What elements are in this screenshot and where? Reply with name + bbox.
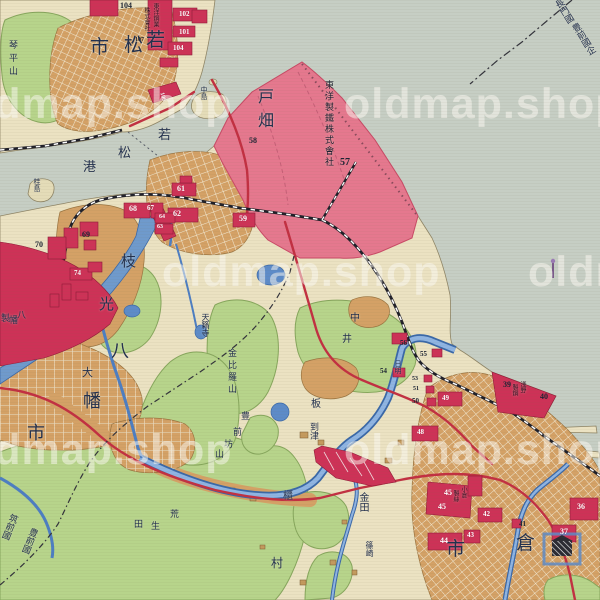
label-tobata: 戸畑 xyxy=(255,88,271,136)
lot-number-55-19: 55 xyxy=(420,351,427,358)
label-konpirayama: 金比羅山 xyxy=(227,348,236,396)
label-wakamatsu-city-0: 市 xyxy=(90,38,109,57)
lot-number-50-23: 50 xyxy=(412,398,419,405)
lot-number-45-28: 45 xyxy=(444,489,452,497)
label-wakamatsu-port-0: 若 xyxy=(158,128,171,141)
label-yahata-city-2: 市 xyxy=(27,424,45,442)
label-asano-1: 淺野 xyxy=(519,381,525,393)
label-buzenbo-yama-2: 坊 xyxy=(224,440,233,449)
island-katsurajima xyxy=(28,179,54,202)
label-buzenbo-yama-0: 豊 xyxy=(241,412,250,421)
label-pier-company-2: 株式會社 xyxy=(143,7,149,31)
label-araota-1: 生 xyxy=(151,522,160,531)
label-yahata-city-1: 幡 xyxy=(83,392,101,410)
label-wakamatsu-port-1: 松 xyxy=(118,146,131,159)
lot-number-40-27: 40 xyxy=(540,393,548,401)
label-kanada: 金田 xyxy=(357,492,367,512)
label-asano-2: 製鋼 xyxy=(511,384,517,396)
lot-number-36-34: 36 xyxy=(577,503,585,511)
label-tenraiji: 天籟寺 xyxy=(201,313,209,337)
label-yahata-seitetsu-2: 八 xyxy=(17,311,26,320)
lot-number-56-18: 56 xyxy=(400,340,407,347)
label-nakai-1: 井 xyxy=(342,335,352,345)
lot-number-74-17: 74 xyxy=(74,270,81,277)
lot-number-45-29: 45 xyxy=(438,503,446,511)
lot-number-63-13: 63 xyxy=(157,224,163,230)
lot-number-44-33: 44 xyxy=(440,537,448,545)
label-itozu: 到津 xyxy=(309,422,318,440)
label-kokura-city-1: 市 xyxy=(446,540,465,559)
lot-number-54-20: 54 xyxy=(380,368,387,375)
label-buzenbo-yama-3: 山 xyxy=(215,450,224,459)
lot-number-68-10: 68 xyxy=(129,205,137,213)
lot-number-104-0: 104 xyxy=(120,2,132,10)
lot-number-53-21: 53 xyxy=(412,376,418,382)
label-pier-company-1: 東洋鋼業 xyxy=(152,3,158,27)
label-araota-2: 田 xyxy=(134,520,143,529)
label-edamitsu-1: 光 xyxy=(99,298,114,313)
label-itabitsu-0: 板 xyxy=(311,400,321,410)
lot-number-61-8: 61 xyxy=(177,185,185,193)
lot-number-104-4: 104 xyxy=(173,45,184,52)
label-araota-0: 荒 xyxy=(170,510,179,519)
lot-number-107-1: 107 xyxy=(135,37,144,43)
label-kokura-city-0: 倉 xyxy=(516,534,535,553)
label-yahata-city-0: 八 xyxy=(111,342,129,360)
lot-number-102-2: 102 xyxy=(179,11,190,18)
label-kotohirayama: 琴平山 xyxy=(8,40,17,79)
label-hiagari: 日明 xyxy=(394,360,401,374)
lot-number-58-6: 58 xyxy=(249,137,257,145)
label-buzenbo-yama-1: 前 xyxy=(233,428,242,437)
lot-number-62-9: 62 xyxy=(173,210,181,218)
lot-number-39-26: 39 xyxy=(503,381,511,389)
lot-number-69-15: 69 xyxy=(82,231,90,239)
lot-number-70-16: 70 xyxy=(35,241,43,249)
vintage-map-canvas: 市松若琴平山中島桂島若松港戸畑東洋製鐵株式會社東洋鋼業株式會社枝光八幡市大製幡八… xyxy=(0,0,600,600)
lot-number-48-25: 48 xyxy=(417,429,424,436)
label-katsurajima: 桂島 xyxy=(33,178,40,192)
lot-number-43-32: 43 xyxy=(467,532,474,539)
label-edamitsu-0: 枝 xyxy=(121,255,136,270)
lot-number-101-3: 101 xyxy=(179,29,190,36)
label-kokura-seishi-1: 小倉 xyxy=(460,486,466,498)
label-shinozaki: 篠崎 xyxy=(365,541,373,557)
label-wakamatsu-port-2: 港 xyxy=(83,160,96,173)
lot-number-51-22: 51 xyxy=(413,386,419,392)
label-nakai-0: 中 xyxy=(350,314,360,324)
label-wakamatsu-city-2: 若 xyxy=(146,31,165,50)
label-kokura-seishi-2: 製絲 xyxy=(452,490,458,502)
lot-number-59-14: 59 xyxy=(239,215,247,223)
label-itabitsu-1: 櫃 xyxy=(283,492,293,502)
lot-number-67-11: 67 xyxy=(147,205,154,212)
lot-number-49-24: 49 xyxy=(442,395,449,402)
map-drawing xyxy=(0,0,600,600)
lot-number-42-30: 42 xyxy=(483,511,490,518)
lot-number-41-31: 41 xyxy=(519,521,526,528)
label-toyo-seitetsu: 東洋製鐵株式會社 xyxy=(324,80,333,168)
label-mura: 村 xyxy=(271,557,283,569)
label-nakajima: 中島 xyxy=(200,86,207,100)
label-oaza-dai: 大 xyxy=(82,368,93,379)
lot-number-57-7: 57 xyxy=(340,158,350,168)
lot-number-64-12: 64 xyxy=(159,214,165,220)
lot-number-37-35: 37 xyxy=(560,528,568,536)
